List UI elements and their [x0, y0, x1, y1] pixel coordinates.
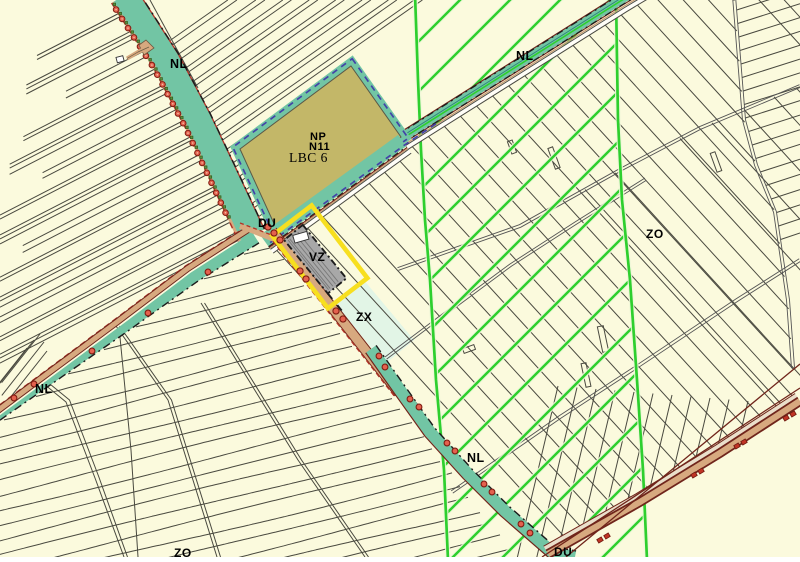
svg-text:DU: DU	[554, 545, 572, 557]
svg-text:NL: NL	[467, 451, 485, 465]
svg-text:LBC 6: LBC 6	[289, 150, 328, 165]
svg-text:VZ: VZ	[309, 250, 325, 264]
svg-text:NL: NL	[516, 49, 534, 63]
svg-text:NL: NL	[35, 382, 53, 396]
svg-text:ZO: ZO	[174, 546, 192, 557]
svg-text:DU: DU	[258, 216, 276, 230]
svg-text:ZO: ZO	[646, 227, 664, 241]
svg-text:NL: NL	[170, 57, 188, 71]
svg-text:ZX: ZX	[356, 310, 372, 324]
